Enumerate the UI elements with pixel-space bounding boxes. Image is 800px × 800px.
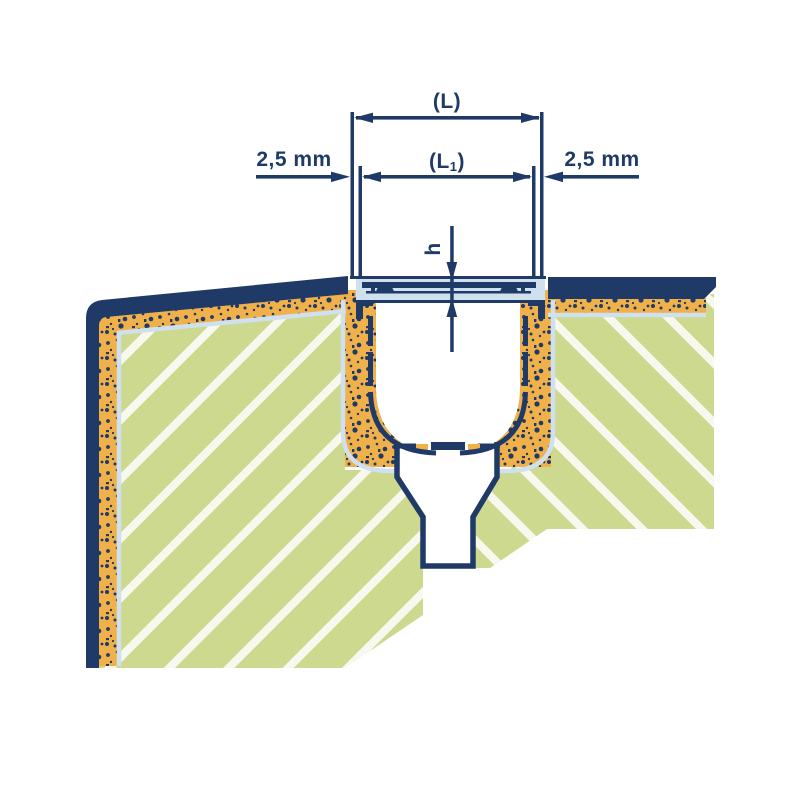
mortar-under-surface-right [548, 298, 706, 314]
dim-label-gap-left: 2,5 mm [256, 148, 331, 172]
dim-label-l1: (L1) [429, 150, 465, 174]
outlet-flange [431, 442, 465, 450]
grate-step-left [371, 287, 375, 293]
mortar-left-wall [99, 312, 117, 666]
grate-top-edge [350, 276, 546, 279]
grate-step-right [521, 287, 525, 293]
surface-layer-right [548, 277, 716, 299]
grate-assembly [350, 276, 546, 303]
technical-drawing: (L) (L1) 2,5 mm 2,5 mm h [0, 0, 800, 800]
dim-label-l: (L) [433, 90, 461, 114]
dim-label-h: h [422, 242, 446, 255]
cross-section-canvas [0, 0, 800, 800]
dim-label-gap-right: 2,5 mm [564, 148, 639, 172]
